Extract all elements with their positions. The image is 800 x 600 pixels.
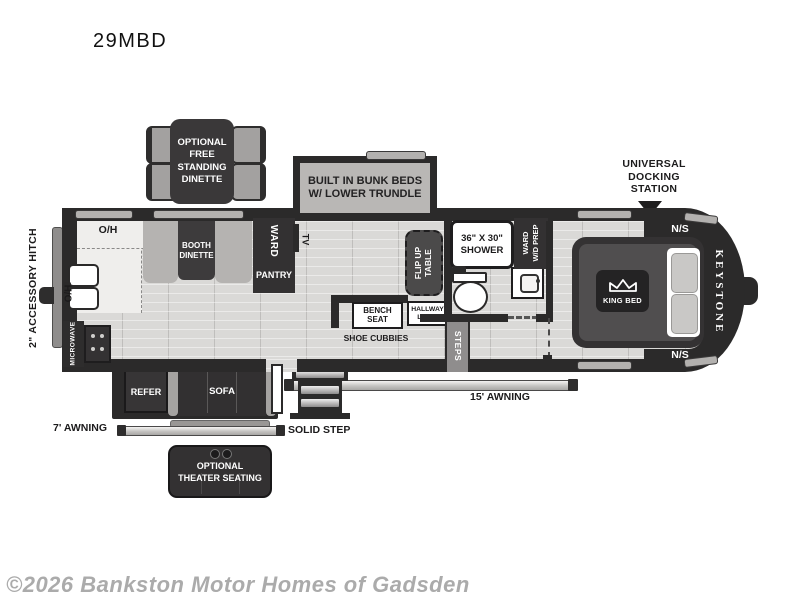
theater-seating: OPTIONAL THEATER SEATING — [168, 445, 272, 498]
sofa: SOFA — [178, 366, 266, 416]
free-standing-dinette-table: OPTIONAL FREE STANDING DINETTE — [170, 119, 234, 204]
tv-label: TV — [300, 227, 313, 253]
steps-label: STEPS — [451, 323, 465, 369]
faucet-icon — [536, 279, 540, 283]
shoe-cubbies-label: SHOE CUBBIES — [326, 333, 426, 343]
free-standing-dinette-label: OPTIONAL FREE STANDING DINETTE — [177, 137, 226, 186]
overhead-side-label: O/H — [63, 274, 76, 314]
bunk-slideout: BUILT IN BUNK BEDS W/ LOWER TRUNDLE — [293, 156, 437, 220]
stove — [84, 325, 111, 363]
bathroom-door-swing — [508, 316, 538, 319]
awning-main-label: 15' AWNING — [470, 391, 530, 403]
king-bed-label: KING BED — [603, 296, 642, 305]
shower-label: 36" X 30" SHOWER — [461, 233, 504, 256]
cupholder-icon — [210, 449, 220, 459]
bathroom-vanity-sink — [511, 267, 544, 299]
crown-icon — [606, 278, 640, 294]
booth-dinette-table: BOOTH DINETTE — [178, 221, 215, 280]
window-marker — [577, 361, 632, 370]
sofa-label: SOFA — [209, 386, 235, 397]
window-marker — [75, 210, 133, 219]
window-marker — [577, 210, 632, 219]
refrigerator: REFER — [124, 370, 168, 413]
sofa-armrest — [168, 366, 178, 416]
bench-seat-label: BENCH SEAT — [363, 307, 391, 325]
awning-front-label: 7' AWNING — [53, 422, 107, 434]
microwave-label: MICROWAVE — [67, 322, 80, 366]
model-title: 29MBD — [93, 30, 167, 53]
ns-label-bottom: N/S — [655, 349, 705, 361]
toilet-bowl — [453, 281, 488, 313]
solid-step — [290, 368, 350, 419]
ward-wd-prep-label: WARD W/D PREP — [520, 217, 542, 269]
king-bed: KING BED — [572, 237, 704, 348]
window-marker — [153, 210, 244, 219]
solid-step-label: SOLID STEP — [288, 424, 350, 436]
dealer-watermark: ©2026 Bankston Motor Homes of Gadsden — [6, 572, 470, 598]
accessory-hitch-stub — [39, 287, 54, 304]
bunk-beds-label: BUILT IN BUNK BEDS W/ LOWER TRUNDLE — [308, 175, 422, 201]
refer-label: REFER — [131, 387, 162, 397]
bench-seat: BENCH SEAT — [352, 302, 403, 329]
shower: 36" X 30" SHOWER — [450, 220, 514, 269]
flip-up-table-label: FLIP UP TABLE — [416, 233, 432, 293]
overhead-cabinet-label: O/H — [88, 224, 128, 236]
booth-bench — [215, 221, 252, 283]
wardrobe-label: WARD — [267, 216, 281, 266]
docking-station-label: UNIVERSAL DOCKING STATION — [608, 158, 700, 196]
accessory-hitch-label: 2" ACCESSORY HITCH — [26, 228, 40, 348]
theater-seating-label: OPTIONAL THEATER SEATING — [170, 460, 270, 484]
wall-stub — [331, 295, 339, 328]
cupholder-icon — [222, 449, 232, 459]
bathroom-wall — [420, 314, 508, 322]
keystone-brand-label: KEYSTONE — [711, 252, 727, 332]
awning-front-bar — [117, 426, 285, 436]
pillow — [671, 294, 698, 334]
floorplan-page: 29MBD OPTIONAL FREE STANDING DINETTE UNI… — [0, 0, 800, 600]
bedroom-wall — [546, 221, 553, 316]
tv-unit — [293, 224, 299, 252]
dinette-chair — [231, 163, 266, 201]
booth-bench — [143, 221, 178, 283]
ns-label-top: N/S — [655, 223, 705, 235]
pillow — [671, 253, 698, 293]
window-marker — [366, 151, 426, 160]
dinette-chair — [231, 126, 266, 164]
booth-dinette-label: BOOTH DINETTE — [179, 241, 213, 261]
pantry-label: PANTRY — [253, 270, 295, 280]
entry-door-leaf — [271, 364, 283, 414]
bedroom-divider-dashed — [548, 318, 550, 358]
bedroom-divider-endcap — [543, 355, 552, 364]
king-bed-badge: KING BED — [596, 270, 649, 312]
